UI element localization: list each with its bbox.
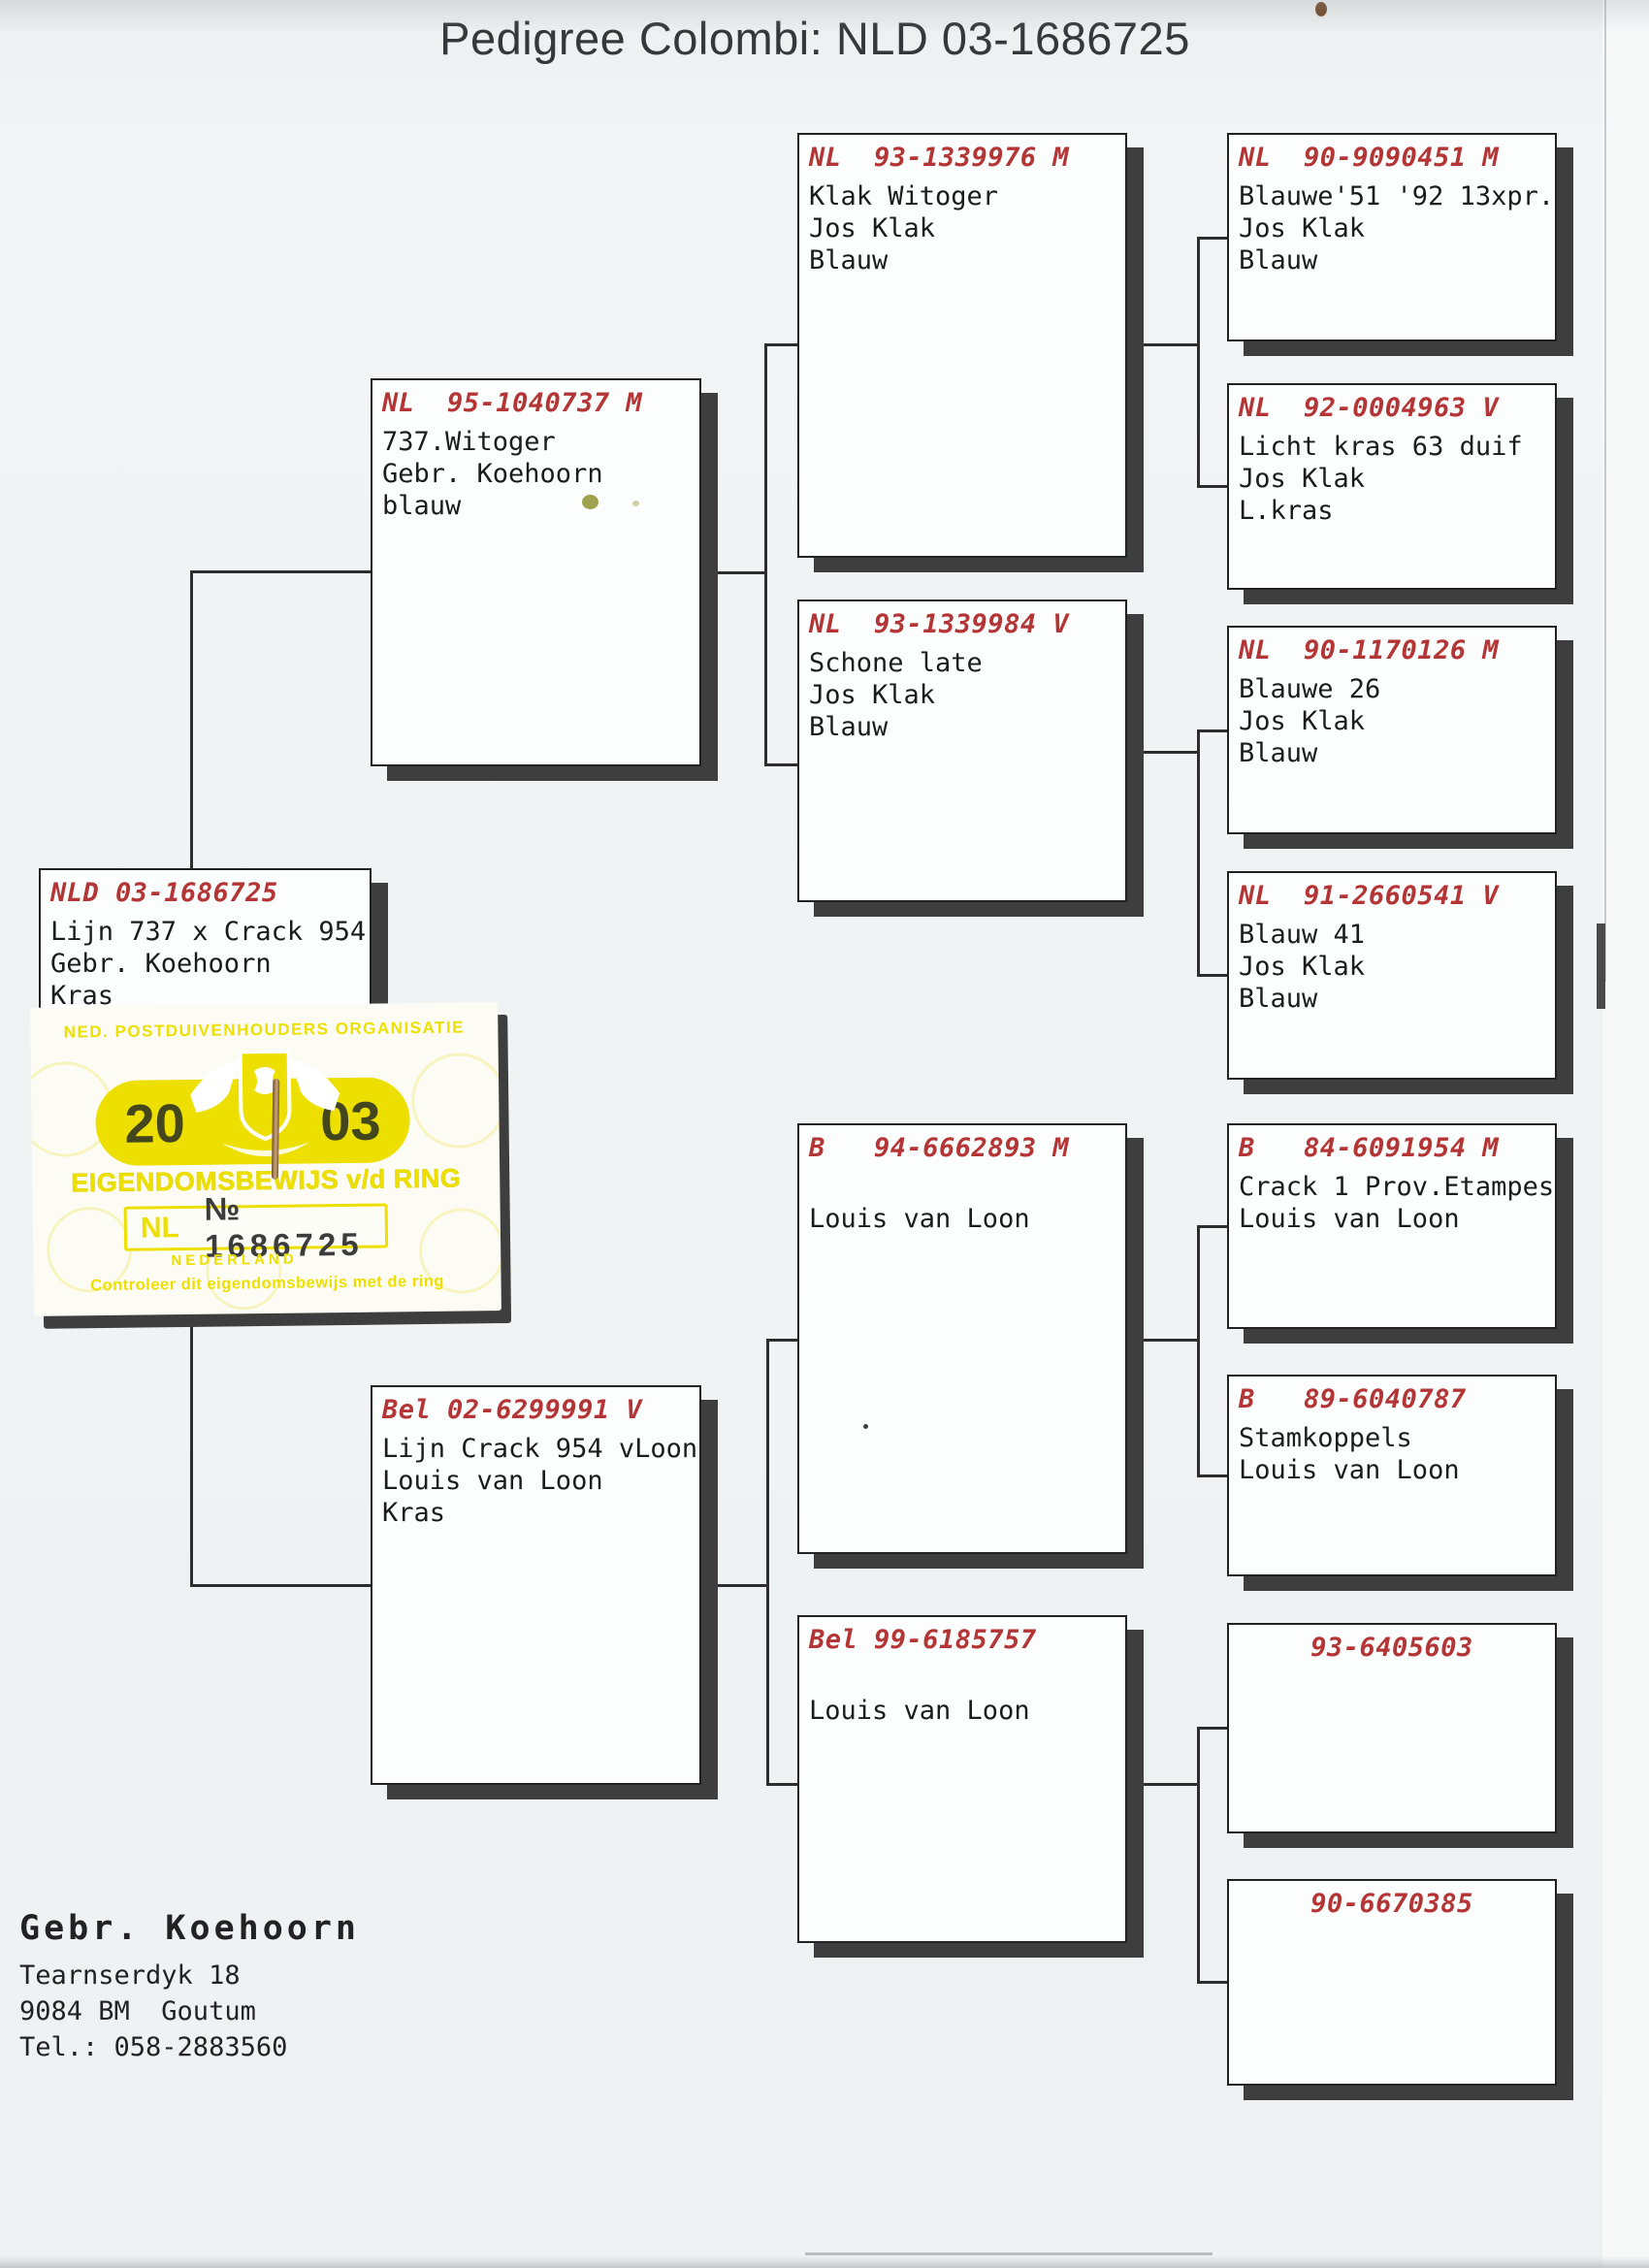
ring-number: NL 92-0004963 V (1239, 393, 1555, 423)
breeder-name: Louis van Loon (1239, 1203, 1555, 1235)
connector-line (1115, 343, 1199, 346)
ring-number: NL 91-2660541 V (1239, 881, 1555, 911)
breeder-name: Jos Klak (1239, 951, 1555, 983)
breeder-name: Louis van Loon (809, 1203, 1125, 1235)
connector-line (1197, 1981, 1229, 1984)
year-left: 20 (124, 1091, 185, 1155)
bird-name: Crack 1 Prov.Etampes (1239, 1171, 1555, 1203)
ring-number: NL 95-1040737 M (382, 388, 699, 418)
breeder-name: Gebr. Koehoorn (382, 458, 699, 490)
connector-line (764, 343, 799, 346)
scan-bottom-shading (0, 2256, 1649, 2268)
bird-name: Blauwe 26 (1239, 673, 1555, 705)
owner-city: 9084 BM Goutum (19, 1993, 360, 2029)
ring-number: B 84-6091954 M (1239, 1133, 1555, 1163)
owner-phone: Tel.: 058-2883560 (19, 2029, 360, 2065)
ring-number: NL 90-1170126 M (1239, 635, 1555, 665)
connector-line (1115, 751, 1199, 754)
pedigree-box-ggp-8: 90-6670385 (1227, 1879, 1557, 2086)
owner-name: Gebr. Koehoorn (19, 1909, 360, 1948)
pedigree-box-ggp-4: NL 91-2660541 V Blauw 41 Jos Klak Blauw (1227, 871, 1557, 1080)
ring-number: NL 93-1339984 V (809, 609, 1125, 639)
breeder-name: Jos Klak (1239, 463, 1555, 495)
scan-bottom-line (805, 2252, 1212, 2255)
ring-number: NLD 03-1686725 (50, 878, 370, 908)
ring-number: B 89-6040787 (1239, 1384, 1555, 1414)
pedigree-box-grandparent-4: Bel 99-6185757 Louis van Loon (797, 1615, 1127, 1943)
connector-line (190, 1584, 371, 1587)
color-note: Blauw (1239, 244, 1555, 276)
color-note: Blauw (809, 711, 1125, 743)
country-code: NL (141, 1212, 179, 1245)
connector-line (190, 570, 371, 573)
pedigree-box-ggp-5: B 84-6091954 M Crack 1 Prov.Etampes Loui… (1227, 1123, 1557, 1329)
connector-line (1197, 974, 1229, 977)
pedigree-box-dam: Bel 02-6299991 V Lijn Crack 954 vLoon Lo… (371, 1385, 701, 1785)
connector-line (764, 343, 767, 766)
color-note: Blauw (809, 244, 1125, 276)
connector-line (764, 763, 799, 766)
watermark-ring (411, 1053, 501, 1149)
color-note: L.kras (1239, 495, 1555, 527)
owner-street: Tearnserdyk 18 (19, 1958, 360, 1993)
pedigree-box-grandparent-3: B 94-6662893 M Louis van Loon (797, 1123, 1127, 1554)
pedigree-box-ggp-3: NL 90-1170126 M Blauwe 26 Jos Klak Blauw (1227, 626, 1557, 834)
scan-top-shading (0, 0, 1649, 33)
staple (272, 1079, 279, 1180)
pedigree-box-ggp-6: B 89-6040787 Stamkoppels Louis van Loon (1227, 1375, 1557, 1576)
stain-speck (632, 501, 639, 506)
bird-name: Blauwe'51 '92 13xpr. (1239, 180, 1555, 212)
connector-line (1197, 237, 1229, 240)
color-note: Blauw (1239, 737, 1555, 769)
connector-line (190, 571, 193, 868)
connector-line (1197, 729, 1229, 732)
ring-number: Bel 02-6299991 V (382, 1395, 699, 1425)
connector-line (1197, 1225, 1229, 1228)
breeder-name: Louis van Loon (382, 1465, 699, 1497)
bird-name: Blauw 41 (1239, 919, 1555, 951)
bird-name: Klak Witoger (809, 180, 1125, 212)
connector-line (1197, 1225, 1200, 1476)
breeder-name: Jos Klak (809, 679, 1125, 711)
breeder-name: Jos Klak (1239, 212, 1555, 244)
scan-seam-line (1604, 0, 1606, 982)
bird-name: Lijn 737 x Crack 954 (50, 916, 370, 948)
breeder-name: Louis van Loon (809, 1695, 1125, 1727)
scan-edge-mark (1597, 923, 1605, 1009)
pedigree-box-sire: NL 95-1040737 M 737.Witoger Gebr. Koehoo… (371, 378, 701, 766)
breeder-name: Jos Klak (1239, 705, 1555, 737)
pedigree-box-grandparent-2: NL 93-1339984 V Schone late Jos Klak Bla… (797, 599, 1127, 902)
connector-line (1197, 237, 1200, 488)
bird-name: Schone late (809, 647, 1125, 679)
connector-line (1115, 1783, 1199, 1786)
stain-speck (863, 1424, 868, 1429)
color-note: Blauw (1239, 983, 1555, 1015)
ownership-certificate-sticker: NED. POSTDUIVENHOUDERS ORGANISATIE 20 03… (30, 1002, 501, 1316)
ring-number-box: NL № 1686725 (124, 1203, 389, 1250)
ring-number: NL 90-9090451 M (1239, 143, 1555, 173)
connector-line (190, 1312, 193, 1587)
ring-number: 90-6670385 (1229, 1889, 1555, 1919)
bird-name (809, 1171, 1125, 1203)
color-note: blauw (382, 490, 699, 522)
pedigree-document: Pedigree Colombi: NLD 03-1686725 NLD 03-… (0, 0, 1649, 2268)
pedigree-box-ggp-7: 93-6405603 (1227, 1623, 1557, 1833)
pedigree-box-ggp-2: NL 92-0004963 V Licht kras 63 duif Jos K… (1227, 383, 1557, 590)
ring-number: 93-6405603 (1229, 1633, 1555, 1663)
breeder-name: Gebr. Koehoorn (50, 948, 370, 980)
bird-name: 737.Witoger (382, 426, 699, 458)
owner-address-block: Gebr. Koehoorn Tearnserdyk 18 9084 BM Go… (19, 1909, 360, 2065)
connector-line (1197, 729, 1200, 977)
bird-name: Stamkoppels (1239, 1422, 1555, 1454)
ring-number: NL 93-1339976 M (809, 143, 1125, 173)
connector-line (1197, 1474, 1229, 1477)
breeder-name: Jos Klak (809, 212, 1125, 244)
scan-edge-strip (1602, 0, 1649, 2268)
ring-number: B 94-6662893 M (809, 1133, 1125, 1163)
connector-line (766, 1339, 799, 1342)
ring-number: Bel 99-6185757 (809, 1625, 1125, 1655)
nederland-label: NEDERLAND (33, 1249, 436, 1271)
stain-speck (582, 495, 598, 509)
color-note: Kras (382, 1497, 699, 1529)
bird-name: Licht kras 63 duif (1239, 431, 1555, 463)
bird-name: Lijn Crack 954 vLoon (382, 1433, 699, 1465)
connector-line (1197, 485, 1229, 488)
pedigree-box-ggp-1: NL 90-9090451 M Blauwe'51 '92 13xpr. Jos… (1227, 133, 1557, 341)
breeder-name: Louis van Loon (1239, 1454, 1555, 1486)
connector-line (766, 1339, 769, 1785)
pedigree-box-grandparent-1: NL 93-1339976 M Klak Witoger Jos Klak Bl… (797, 133, 1127, 558)
connector-line (1115, 1339, 1199, 1342)
connector-line (1197, 1727, 1200, 1982)
npo-dove-shield-emblem-icon (181, 1033, 348, 1181)
connector-line (1197, 1727, 1229, 1730)
bird-name (809, 1663, 1125, 1695)
connector-line (766, 1783, 799, 1786)
